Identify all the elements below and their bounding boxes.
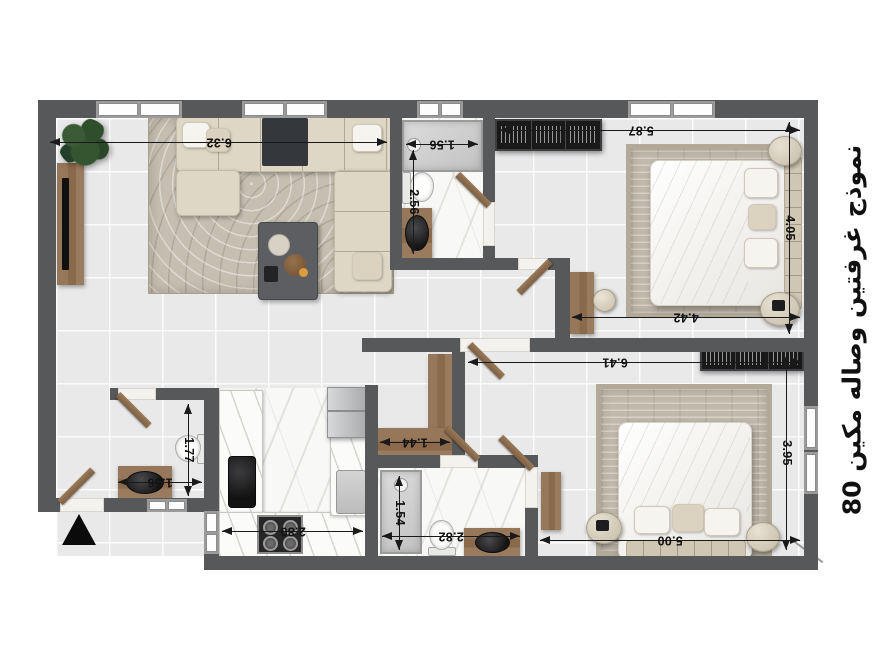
bath1-door-opening — [483, 202, 495, 246]
wall-bath1-left — [390, 118, 402, 270]
wall-hall-a — [495, 258, 518, 270]
wall-left — [38, 118, 56, 512]
dimension-bedroom1-lower-width: 4.42 — [572, 317, 800, 318]
wall-bath2-top-a — [378, 455, 440, 468]
apartment-floor-plan: 6.32 1.56 2.56 5.87 4.05 4.42 6.41 3.95 … — [0, 0, 890, 659]
wall-bath1-right-lower — [483, 246, 495, 270]
window-bath1 — [417, 101, 463, 118]
kitchen-sink — [228, 456, 256, 508]
fridge-icon — [327, 387, 368, 438]
dimension-kitchen-width: 2.80 — [222, 531, 363, 532]
dimension-bath1-shower-width: 1.56 — [406, 144, 478, 145]
dimension-bedroom1-width: 5.87 — [500, 130, 800, 131]
window-bedroom1 — [628, 101, 715, 118]
dimension-bedroom2-width: 6.41 — [468, 362, 802, 363]
bed2-pillow — [634, 506, 670, 534]
bed1-nightstand-top — [768, 136, 802, 166]
tv-screen — [62, 178, 69, 270]
window-bedroom2-1 — [804, 406, 818, 450]
wall-bottom — [204, 556, 818, 570]
wall-kitchen-right — [365, 385, 378, 570]
wall-bath1-right-upper — [483, 118, 495, 202]
window-kitchen — [204, 511, 219, 554]
bedroom2-dresser — [541, 472, 561, 530]
bed1-pillow — [744, 238, 778, 268]
bedroom1-stool — [593, 289, 616, 312]
plant-icon — [58, 118, 110, 168]
wall-bath1-bottom — [390, 258, 495, 270]
window-living-1 — [96, 101, 182, 118]
kitchen-sink-secondary — [336, 470, 366, 514]
bed2-pillow — [672, 504, 704, 532]
bed1-pillow — [748, 204, 776, 230]
wall-bedroom1-left — [555, 258, 570, 342]
decor-candle — [299, 268, 308, 277]
decor-box — [264, 266, 278, 282]
dimension-bath2-width: 2.82 — [382, 536, 520, 537]
bedroom1-desk — [570, 272, 594, 334]
dimension-bedroom1-depth: 4.05 — [789, 122, 790, 334]
bed1-duvet — [650, 160, 748, 304]
decor-plate — [268, 234, 290, 256]
sofa-pillow — [352, 252, 382, 280]
bed1-pillow — [744, 168, 778, 198]
floor-plan-page: 6.32 1.56 2.56 5.87 4.05 4.42 6.41 3.95 … — [0, 0, 890, 659]
entrance-marker-icon — [62, 514, 96, 545]
wall-bedroom2-left-b — [525, 508, 538, 570]
bed2-lamp — [596, 520, 609, 531]
dimension-bedroom2-depth: 3.95 — [786, 356, 787, 550]
wall-bedroom1-bottom — [530, 338, 818, 352]
bed1-lamp — [772, 300, 785, 311]
bed2-nightstand-right — [746, 522, 780, 552]
wall-nook-top — [362, 338, 460, 352]
dimension-wc-width: 1.56 — [118, 482, 202, 483]
window-living-2 — [242, 101, 327, 118]
dimension-living-width: 6.32 — [50, 142, 387, 143]
wardrobe1 — [495, 119, 602, 151]
dimension-bedroom2-lower-width: 5.00 — [540, 540, 800, 541]
dimension-bath1-length: 2.56 — [413, 150, 414, 254]
wall-wc-top-b — [156, 388, 219, 400]
plan-title: نموذج غرفتين وصاله مكين 80 — [838, 145, 867, 516]
window-wc — [147, 499, 187, 512]
bedroom2-lower-door-opening — [525, 467, 538, 508]
window-bedroom2-2 — [804, 452, 818, 494]
sofa-chaise — [176, 170, 240, 216]
dimension-bath2-shower-length: 1.54 — [399, 476, 400, 550]
bed2-pillow — [704, 508, 740, 536]
bed2-duvet — [618, 422, 750, 514]
dimension-hall-cabinet-width: 1.44 — [380, 442, 450, 443]
